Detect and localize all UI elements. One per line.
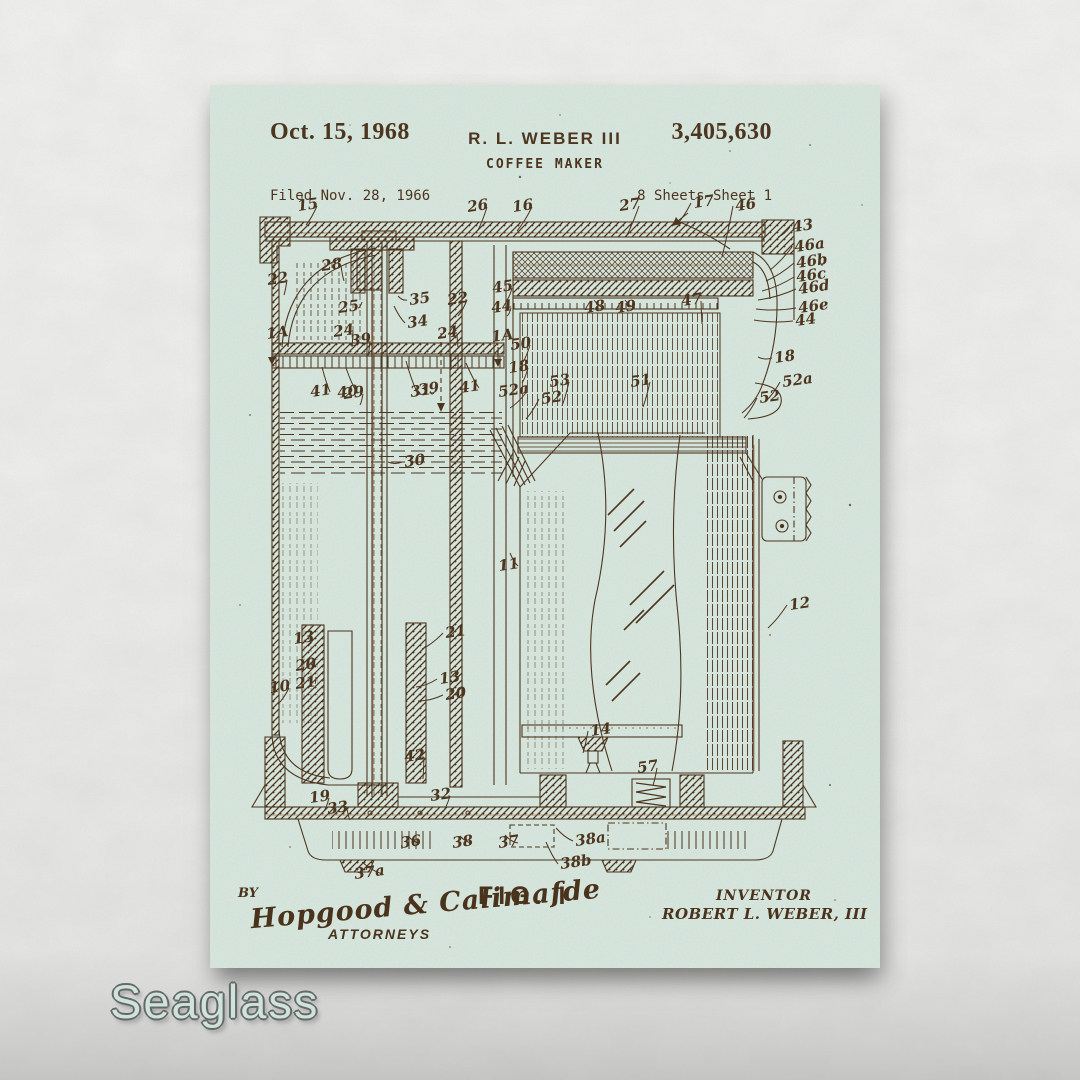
svg-text:46: 46 xyxy=(734,194,758,215)
attorneys-label: ATTORNEYS xyxy=(328,926,431,942)
svg-text:44: 44 xyxy=(490,296,513,317)
svg-text:37a: 37a xyxy=(353,861,386,883)
svg-text:36: 36 xyxy=(399,831,423,852)
svg-text:57: 57 xyxy=(636,756,660,777)
svg-text:34: 34 xyxy=(406,311,429,332)
svg-text:38: 38 xyxy=(451,831,475,852)
svg-text:24: 24 xyxy=(435,322,459,343)
patent-drawing: 1526162717464346a46b46c46d46e44222825353… xyxy=(210,85,880,968)
svg-text:30: 30 xyxy=(403,450,427,471)
svg-text:1A: 1A xyxy=(265,322,289,343)
svg-text:22: 22 xyxy=(445,288,469,309)
svg-text:29: 29 xyxy=(341,382,366,403)
figure-label: FIG. I xyxy=(478,882,571,911)
svg-text:12: 12 xyxy=(788,593,811,614)
svg-text:18: 18 xyxy=(507,356,531,377)
svg-text:20: 20 xyxy=(443,683,468,704)
photo-of-patent-poster: { "wall_color": "#efefed", "poster": { "… xyxy=(0,0,1080,1080)
svg-text:28: 28 xyxy=(319,254,344,275)
patent-poster: Oct. 15, 1968 R. L. WEBER III COFFEE MAK… xyxy=(210,85,880,968)
svg-text:49: 49 xyxy=(614,296,638,317)
svg-text:44: 44 xyxy=(794,309,817,330)
svg-text:32: 32 xyxy=(429,784,452,805)
svg-text:10: 10 xyxy=(268,676,292,697)
svg-text:41: 41 xyxy=(458,376,481,397)
svg-text:33: 33 xyxy=(326,797,349,818)
svg-text:16: 16 xyxy=(511,195,535,216)
svg-text:51: 51 xyxy=(629,370,652,391)
svg-text:48: 48 xyxy=(583,296,607,317)
body-and-carafe xyxy=(490,425,811,773)
by-label: BY xyxy=(238,886,258,901)
svg-text:37: 37 xyxy=(497,831,521,852)
inventor-caption: INVENTOR xyxy=(716,888,812,904)
svg-text:25: 25 xyxy=(336,296,360,317)
svg-text:31: 31 xyxy=(409,380,432,401)
svg-text:45: 45 xyxy=(491,276,514,297)
svg-text:52: 52 xyxy=(758,386,781,407)
water-reservoir xyxy=(272,241,504,785)
svg-text:52a: 52a xyxy=(781,369,814,391)
svg-text:43: 43 xyxy=(791,215,814,236)
svg-text:13: 13 xyxy=(292,627,315,648)
svg-text:52: 52 xyxy=(540,387,563,408)
svg-text:14: 14 xyxy=(589,719,612,740)
svg-text:26: 26 xyxy=(465,195,490,216)
svg-text:42: 42 xyxy=(403,745,426,766)
svg-text:11: 11 xyxy=(497,554,520,575)
svg-text:38b: 38b xyxy=(559,851,593,873)
svg-text:17: 17 xyxy=(692,191,716,212)
svg-text:50: 50 xyxy=(509,333,533,354)
svg-text:38a: 38a xyxy=(574,828,607,850)
seaglass-watermark: Seaglass xyxy=(110,974,319,1029)
svg-text:27: 27 xyxy=(617,194,642,215)
svg-text:18: 18 xyxy=(773,346,797,367)
svg-text:41: 41 xyxy=(309,380,332,401)
svg-text:39: 39 xyxy=(349,329,373,350)
svg-text:35: 35 xyxy=(408,288,431,309)
inventor-name: ROBERT L. WEBER, III xyxy=(662,905,868,923)
svg-text:21: 21 xyxy=(443,621,467,642)
svg-text:47: 47 xyxy=(680,289,704,310)
svg-text:21: 21 xyxy=(293,672,317,693)
svg-text:22: 22 xyxy=(265,268,289,289)
svg-text:15: 15 xyxy=(296,194,319,215)
